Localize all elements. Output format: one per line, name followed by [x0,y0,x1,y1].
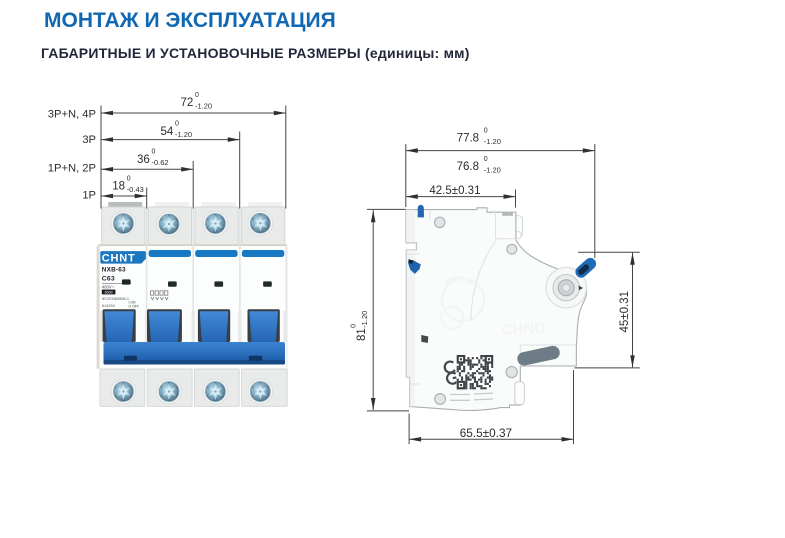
svg-text:1P+N, 2P: 1P+N, 2P [48,162,96,174]
svg-text:NXB-63: NXB-63 [102,267,126,274]
svg-text:3P: 3P [82,134,96,146]
svg-text:0: 0 [351,324,358,328]
svg-text:1P: 1P [82,189,96,201]
svg-text:42.5±0.31: 42.5±0.31 [429,185,480,197]
svg-text:0: 0 [175,121,179,128]
svg-text:-1.20: -1.20 [195,101,212,110]
svg-text:CHNT: CHNT [102,252,136,264]
svg-text:-1.20: -1.20 [175,130,192,139]
svg-text:-1.20: -1.20 [484,137,501,146]
svg-text:0: 0 [195,92,199,99]
svg-text:O OFF: O OFF [129,304,139,308]
svg-text:-1.20: -1.20 [484,165,501,174]
svg-text:76.8: 76.8 [457,161,479,173]
svg-text:0: 0 [152,149,156,156]
svg-text:54: 54 [161,126,174,138]
svg-text:18: 18 [112,181,125,193]
svg-text:-0.43: -0.43 [127,185,144,194]
svg-text:-1.20: -1.20 [360,311,369,328]
svg-text:0: 0 [127,175,131,182]
svg-text:0: 0 [484,156,488,163]
svg-text:6000: 6000 [105,290,113,294]
svg-text:C63: C63 [102,276,115,283]
svg-text:3P+N, 4P: 3P+N, 4P [48,109,96,121]
svg-text:0: 0 [484,127,488,134]
svg-text:-0.62: -0.62 [152,158,169,167]
svg-text:72: 72 [181,97,194,109]
svg-text:IEC/EN60898-1: IEC/EN60898-1 [102,296,129,301]
svg-text:814254: 814254 [102,303,116,308]
svg-text:81: 81 [356,328,368,341]
svg-text:65.5±0.37: 65.5±0.37 [460,426,512,440]
svg-text:CHND: CHND [501,320,545,339]
svg-text:45±0.31: 45±0.31 [619,291,631,333]
svg-text:400V~: 400V~ [102,284,115,289]
svg-text:77.8: 77.8 [457,133,479,145]
svg-text:36: 36 [137,154,150,166]
